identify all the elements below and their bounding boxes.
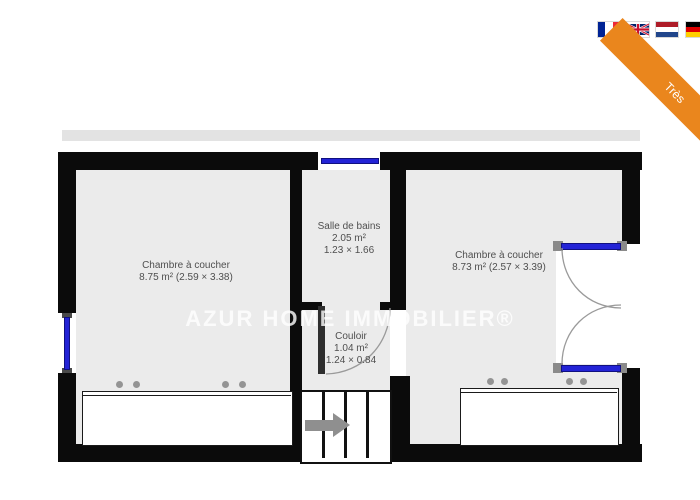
bathroom-window-glass [321,158,379,164]
closet-knob-icon [133,381,140,388]
room-label-corridor: Couloir 1.04 m² 1.24 × 0.84 [326,331,376,367]
closet-knob-icon [580,378,587,385]
stairs-arrow-icon [305,420,333,431]
french-door-bottom-leaf [561,365,621,372]
flag-netherlands-icon[interactable] [656,22,678,37]
floorplan-page: Très [0,0,700,500]
upper-floor-shadow [62,130,640,141]
wall-left-upper [58,152,76,313]
french-door-top-leaf [561,243,621,250]
room-name: Salle de bains [318,221,381,233]
room-name: Chambre à coucher [452,250,546,262]
room-name: Couloir [326,331,376,343]
room-name: Chambre à coucher [139,260,233,272]
stair-tread [366,392,369,458]
bathroom-door-opening [322,302,382,310]
closet-left [82,391,293,446]
room-dims: 1.23 × 1.66 [318,245,381,257]
room-area: 1.04 m² [326,343,376,355]
flag-germany-icon[interactable] [686,22,700,37]
closet-knob-icon [501,378,508,385]
room-area: 2.05 m² [318,233,381,245]
closet-left-track [83,395,291,396]
closet-knob-icon [566,378,573,385]
closet-right-track [461,392,617,393]
wall-right-lower [622,368,640,462]
room-label-bedroom-left: Chambre à coucher 8.75 m² (2.59 × 3.38) [139,260,233,284]
wall-bathroom-corridor-right [380,302,390,310]
left-window-glass [64,317,70,370]
closet-knob-icon [116,381,123,388]
closet-knob-icon [487,378,494,385]
stairs-arrow-head-icon [333,413,350,437]
promo-ribbon-label: Très [661,79,688,106]
room-dims: 1.24 × 0.84 [326,355,376,367]
room-size: 8.75 m² (2.59 × 3.38) [139,272,233,284]
wall-middle-right [390,170,406,310]
room-label-bathroom: Salle de bains 2.05 m² 1.23 × 1.66 [318,221,381,257]
french-door-swing-area [556,250,622,364]
wall-stairs-right [390,376,410,462]
wall-right-upper [622,152,640,244]
closet-knob-icon [239,381,246,388]
closet-right [460,388,619,446]
bathroom-door-leaf [318,306,325,374]
room-label-bedroom-right: Chambre à coucher 8.73 m² (2.57 × 3.39) [452,250,546,274]
room-size: 8.73 m² (2.57 × 3.39) [452,262,546,274]
closet-knob-icon [222,381,229,388]
